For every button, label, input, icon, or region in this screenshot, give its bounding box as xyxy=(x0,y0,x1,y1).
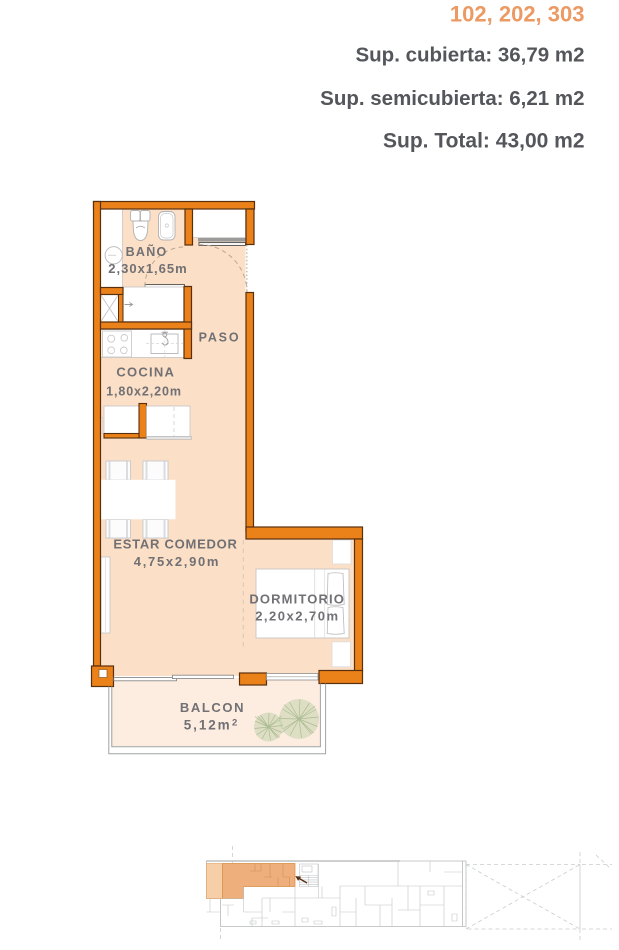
svg-text:1,80x2,20m: 1,80x2,20m xyxy=(106,384,182,398)
svg-text:COCINA: COCINA xyxy=(116,365,175,380)
svg-text:2,30x1,65m: 2,30x1,65m xyxy=(108,261,187,276)
svg-text:Sup. Total: 43,00 m2: Sup. Total: 43,00 m2 xyxy=(383,130,585,153)
svg-text:DORMITORIO: DORMITORIO xyxy=(249,592,345,607)
svg-text:BALCON: BALCON xyxy=(180,700,245,715)
svg-text:ESTAR COMEDOR: ESTAR COMEDOR xyxy=(113,537,237,552)
svg-text:BAÑO: BAÑO xyxy=(126,244,168,259)
svg-text:PASO: PASO xyxy=(199,330,241,344)
svg-text:4,75x2,90m: 4,75x2,90m xyxy=(134,554,220,569)
svg-text:2,20x2,70m: 2,20x2,70m xyxy=(255,608,339,623)
svg-text:Sup. semicubierta: 6,21 m2: Sup. semicubierta: 6,21 m2 xyxy=(320,87,584,110)
svg-text:102, 202, 303: 102, 202, 303 xyxy=(450,2,585,27)
svg-text:Sup. cubierta: 36,79 m2: Sup. cubierta: 36,79 m2 xyxy=(355,44,584,67)
svg-text:5,12m2: 5,12m2 xyxy=(184,717,239,732)
